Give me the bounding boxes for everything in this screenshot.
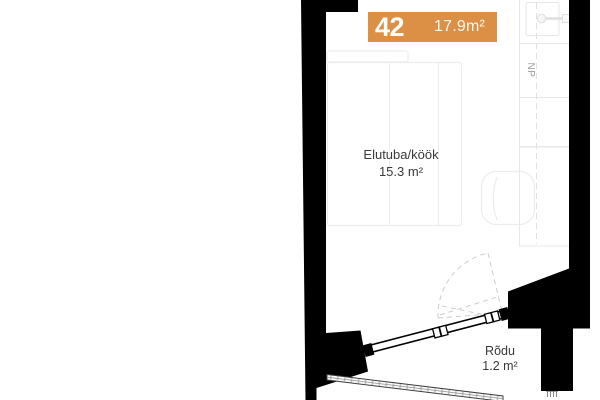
- unit-badge[interactable]: 42 17.9m²: [368, 12, 497, 42]
- floor-plan-drawing: [0, 0, 600, 400]
- living-room-label: Elutuba/köök 15.3 m²: [301, 146, 501, 180]
- bed: [327, 51, 462, 226]
- living-room-area: 15.3 m²: [301, 163, 501, 180]
- unit-number: 42: [375, 13, 404, 41]
- radiator-icon: [546, 391, 558, 397]
- floor-plan-canvas: 42 17.9m² Elutuba/köök 15.3 m² Rõdu 1.2 …: [0, 0, 600, 400]
- np-label: NP: [520, 59, 542, 81]
- balcony-label: Rõdu 1.2 m²: [450, 344, 550, 374]
- unit-area: 17.9m²: [434, 18, 485, 36]
- service-shaft-grid: [520, 0, 570, 244]
- walls: [301, 0, 590, 400]
- balcony-area: 1.2 m²: [450, 359, 550, 374]
- bed-headboard: [327, 51, 408, 62]
- balcony-railing: [327, 375, 503, 400]
- table: [520, 147, 570, 246]
- wall-left: [301, 0, 368, 400]
- balcony-name: Rõdu: [450, 344, 550, 359]
- living-room-name: Elutuba/köök: [301, 146, 501, 163]
- door-swing-arc: [438, 253, 502, 318]
- shaft-fixture-icon: [526, 3, 571, 36]
- bed-outline: [328, 63, 462, 226]
